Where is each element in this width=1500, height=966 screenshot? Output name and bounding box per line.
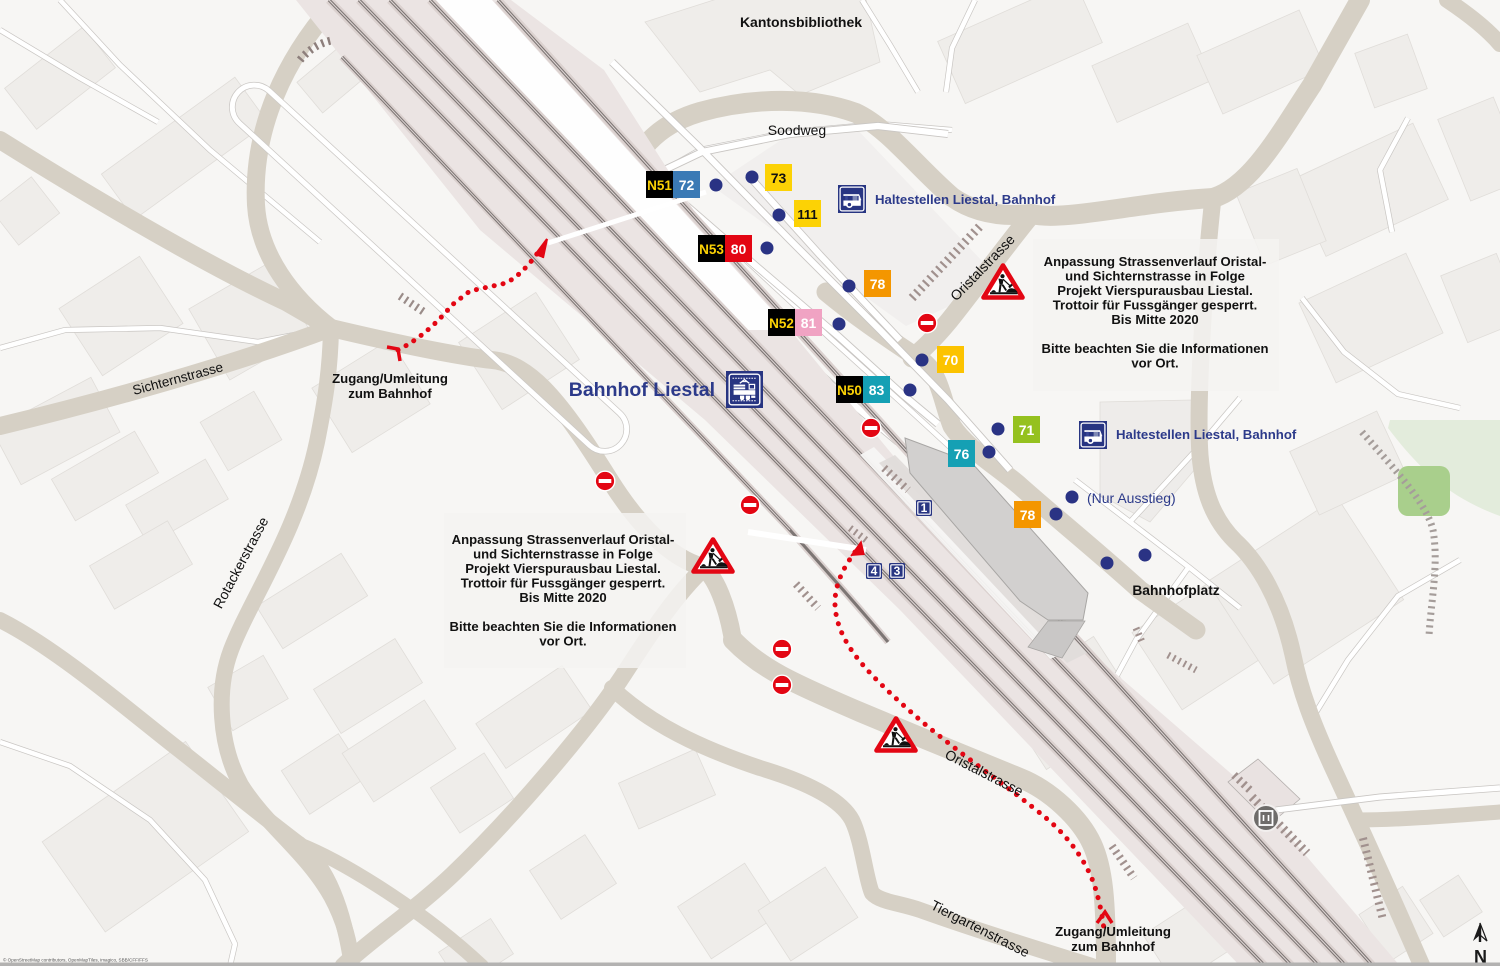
svg-text:78: 78: [1020, 507, 1036, 523]
svg-text:Anpassung Strassenverlauf Oris: Anpassung Strassenverlauf Oristal-: [1044, 254, 1267, 269]
svg-text:Bitte beachten Sie die Informa: Bitte beachten Sie die Informationen: [450, 619, 677, 634]
svg-text:4: 4: [871, 564, 878, 578]
svg-text:Zugang/Umleitung: Zugang/Umleitung: [1055, 924, 1171, 939]
svg-text:81: 81: [801, 315, 817, 331]
svg-text:Anpassung Strassenverlauf Oris: Anpassung Strassenverlauf Oristal-: [452, 532, 675, 547]
svg-text:73: 73: [771, 170, 787, 186]
svg-text:N52: N52: [769, 316, 794, 331]
svg-text:80: 80: [731, 241, 747, 257]
svg-text:N51: N51: [647, 178, 672, 193]
svg-text:Bis Mitte 2020: Bis Mitte 2020: [1111, 312, 1198, 327]
svg-text:vor Ort.: vor Ort.: [1131, 356, 1178, 371]
svg-text:Haltestellen Liestal, Bahnhof: Haltestellen Liestal, Bahnhof: [1116, 427, 1297, 442]
svg-text:1: 1: [921, 501, 928, 515]
svg-text:und Sichternstrasse in Folge: und Sichternstrasse in Folge: [473, 547, 653, 562]
svg-text:Bitte beachten Sie die Informa: Bitte beachten Sie die Informationen: [1042, 341, 1269, 356]
svg-text:Bis Mitte 2020: Bis Mitte 2020: [519, 590, 606, 605]
svg-text:Zugang/Umleitung: Zugang/Umleitung: [332, 371, 448, 386]
svg-text:Projekt Vierspurausbau Liestal: Projekt Vierspurausbau Liestal.: [1057, 283, 1253, 298]
svg-text:111: 111: [797, 207, 817, 222]
svg-text:83: 83: [869, 382, 885, 398]
svg-text:Trottoir für Fussgänger gesper: Trottoir für Fussgänger gesperrt.: [1053, 298, 1257, 313]
svg-text:78: 78: [870, 276, 886, 292]
svg-text:76: 76: [954, 446, 970, 462]
svg-text:(Nur Ausstieg): (Nur Ausstieg): [1087, 490, 1176, 506]
svg-text:Bahnhofplatz: Bahnhofplatz: [1132, 583, 1219, 598]
svg-text:N53: N53: [699, 242, 724, 257]
svg-text:zum Bahnhof: zum Bahnhof: [1071, 939, 1155, 954]
svg-text:Soodweg: Soodweg: [768, 122, 826, 138]
svg-text:und Sichternstrasse in Folge: und Sichternstrasse in Folge: [1065, 269, 1245, 284]
svg-text:Kantonsbibliothek: Kantonsbibliothek: [740, 14, 862, 30]
svg-text:Projekt Vierspurausbau Liestal: Projekt Vierspurausbau Liestal.: [465, 561, 661, 576]
svg-text:N50: N50: [837, 383, 862, 398]
svg-text:Trottoir für Fussgänger gesper: Trottoir für Fussgänger gesperrt.: [461, 576, 665, 591]
svg-text:71: 71: [1019, 422, 1035, 438]
svg-text:Haltestellen Liestal, Bahnhof: Haltestellen Liestal, Bahnhof: [875, 192, 1056, 207]
svg-text:70: 70: [943, 352, 959, 368]
svg-text:© OpenStreetMap contributors,: © OpenStreetMap contributors, OpenMapTil…: [3, 957, 148, 963]
svg-text:Bahnhof Liestal: Bahnhof Liestal: [569, 379, 715, 401]
svg-text:3: 3: [894, 564, 901, 578]
svg-text:72: 72: [679, 177, 695, 193]
svg-text:zum Bahnhof: zum Bahnhof: [348, 386, 432, 401]
svg-text:vor Ort.: vor Ort.: [539, 634, 586, 649]
